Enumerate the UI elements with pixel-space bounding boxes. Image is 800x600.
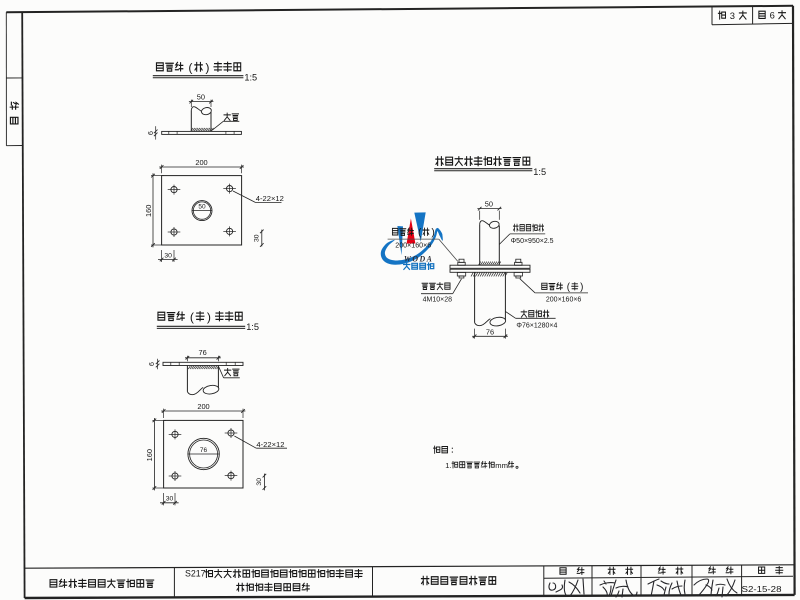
svg-text:S217: S217 <box>185 569 206 579</box>
svg-text:): ) <box>207 310 211 324</box>
svg-text:6: 6 <box>770 10 775 21</box>
svg-text:3: 3 <box>730 10 735 21</box>
svg-text:76: 76 <box>200 447 208 454</box>
svg-text:50: 50 <box>198 204 206 211</box>
svg-text:S2-15-28: S2-15-28 <box>742 585 783 594</box>
svg-text:50: 50 <box>197 92 205 101</box>
svg-text:30: 30 <box>166 496 174 503</box>
svg-text:WODA: WODA <box>404 254 434 263</box>
svg-text:): ) <box>431 228 434 239</box>
svg-text:1.: 1. <box>445 461 451 470</box>
svg-text:50: 50 <box>485 200 493 209</box>
svg-text:): ) <box>580 282 583 293</box>
svg-text:30: 30 <box>256 478 263 486</box>
svg-text:Φ76×1280×4: Φ76×1280×4 <box>516 323 557 330</box>
svg-text:76: 76 <box>198 348 206 357</box>
svg-text:160: 160 <box>144 205 153 217</box>
svg-text:4-22×12: 4-22×12 <box>256 440 284 449</box>
svg-text:1:5: 1:5 <box>246 322 259 332</box>
svg-text:200×160×6: 200×160×6 <box>395 242 431 250</box>
svg-text:4-22×12: 4-22×12 <box>256 194 284 203</box>
svg-text:mm: mm <box>495 461 508 470</box>
svg-text:1:5: 1:5 <box>533 167 546 177</box>
svg-text:200×160×6: 200×160×6 <box>546 297 582 304</box>
svg-text:30: 30 <box>164 252 172 259</box>
svg-text:): ) <box>205 61 209 75</box>
svg-text:(: ( <box>190 310 194 324</box>
svg-text:6: 6 <box>148 131 155 135</box>
svg-text:200: 200 <box>197 402 209 411</box>
svg-text:1:5: 1:5 <box>244 72 257 82</box>
svg-text:76: 76 <box>486 327 494 336</box>
svg-text:6: 6 <box>149 362 156 366</box>
svg-text:Φ50×950×2.5: Φ50×950×2.5 <box>511 238 554 245</box>
svg-text:30: 30 <box>253 234 260 242</box>
svg-text:160: 160 <box>145 449 154 461</box>
svg-text:(: ( <box>418 228 422 239</box>
svg-text:(: ( <box>188 61 192 75</box>
svg-text:200: 200 <box>195 158 207 167</box>
svg-text:4M10×28: 4M10×28 <box>423 297 452 304</box>
